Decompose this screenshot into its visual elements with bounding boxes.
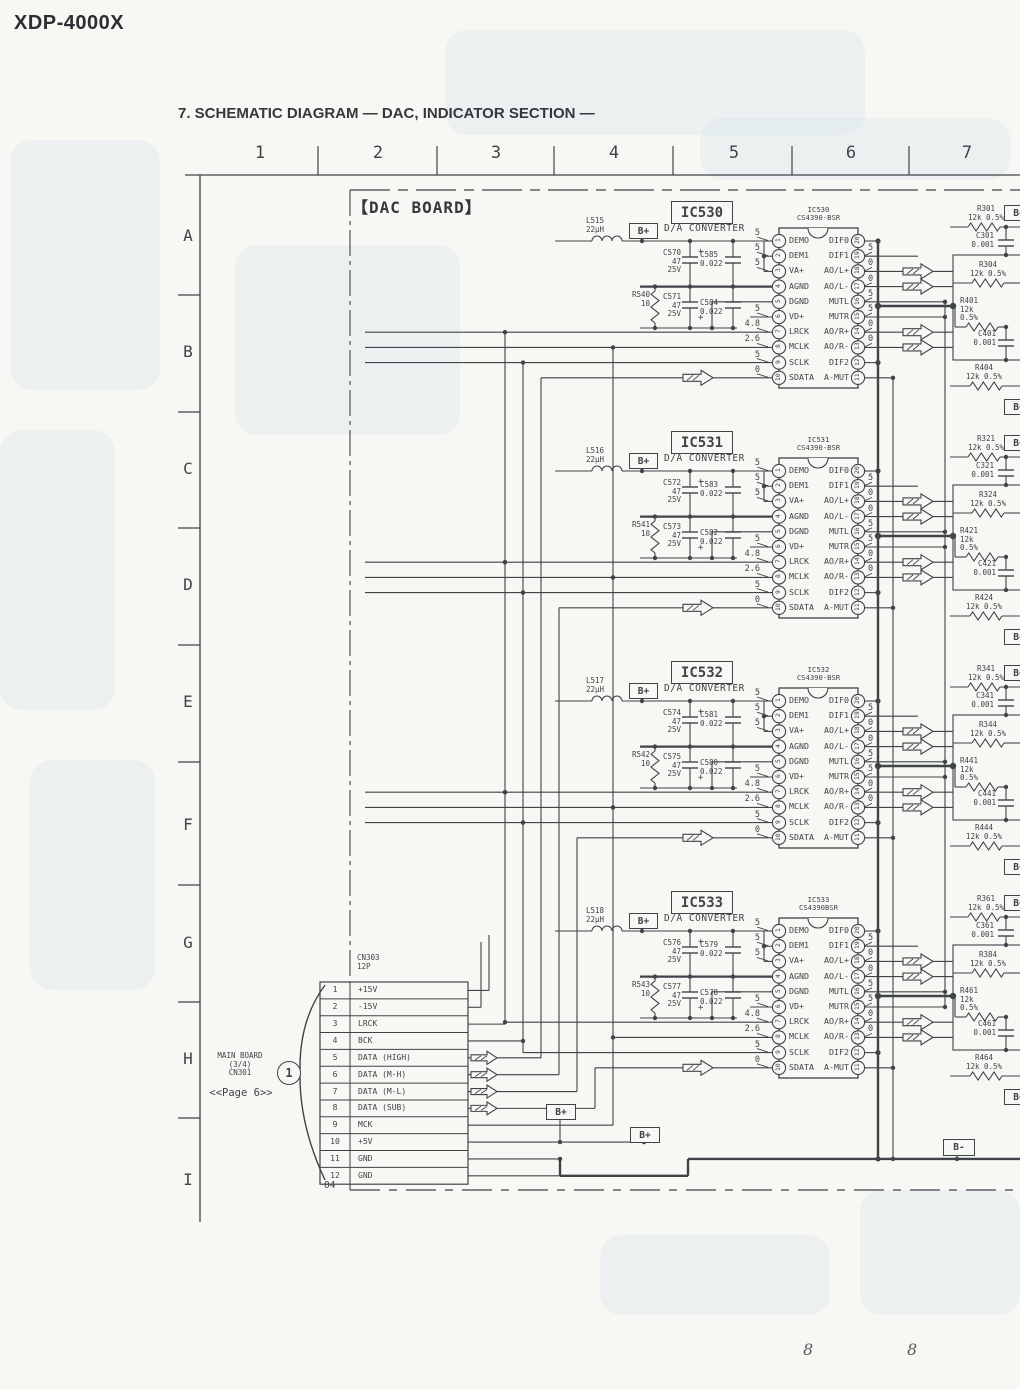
capacitor-label: 0.001 [952, 241, 994, 250]
pin-number: 5 [776, 295, 782, 307]
schematic-page: XDP-4000X 7. SCHEMATIC DIAGRAM — DAC, IN… [0, 0, 1020, 1389]
capacitor-label: C3410.001 [952, 692, 994, 709]
rail-label-bplus-label: B+ [638, 456, 649, 467]
resistor-label: R38412k 0.5% [960, 951, 1016, 968]
capacitor-label: 25V [645, 726, 681, 735]
grid-row-label: F [179, 816, 197, 834]
pin-voltage: 5 [730, 474, 760, 484]
pin-number: 10 [776, 1061, 782, 1073]
connector-pin-number: 4 [320, 1036, 350, 1045]
pin-name: DIF1 [786, 481, 849, 490]
pin-number: 8 [776, 801, 782, 813]
connector-pin-label: +15V [358, 985, 377, 994]
pin-voltage: 0 [868, 335, 873, 345]
capacitor-label: C3010.001 [952, 232, 994, 249]
pin-name: AO/L+ [786, 496, 849, 505]
pin-voltage: 0 [868, 795, 873, 805]
connector-pin-label: LRCK [358, 1019, 377, 1028]
grid-column-label: 4 [606, 144, 622, 163]
pin-name: DIF1 [786, 941, 849, 950]
pin-name: DIF0 [786, 466, 849, 475]
pin-voltage: 5 [730, 581, 760, 591]
main-board-link: CN301 [205, 1069, 275, 1078]
capacitor-label: 25V [645, 956, 681, 965]
pin-name: MUTL [786, 297, 849, 306]
pin-voltage: 0 [730, 826, 760, 836]
pin-voltage: 5 [730, 919, 760, 929]
capacitor-label: 0.022 [700, 768, 723, 777]
resistor-label: R40112k0.5% [960, 297, 978, 323]
pin-voltage: 0 [868, 719, 873, 729]
grid-row-label: C [179, 460, 197, 478]
pin-number: 11 [855, 831, 861, 843]
footer-page-number: 8 [803, 1340, 813, 1359]
connector-pin-number: 7 [320, 1087, 350, 1096]
ic-title: IC531 [671, 431, 733, 454]
pin-number: 13 [855, 571, 861, 583]
pin-number: 16 [855, 755, 861, 767]
pin-voltage: 5 [730, 535, 760, 545]
rail-label-clipped: B+ [1004, 859, 1020, 875]
pin-number: 17 [855, 280, 861, 292]
resistor-symbol [970, 382, 1002, 390]
pin-voltage: 0 [868, 1025, 873, 1035]
pin-name: DIF2 [786, 588, 849, 597]
pin-number: 12 [855, 586, 861, 598]
connector-pin-label: -15V [358, 1002, 377, 1011]
rail-label-bplus: B+ [629, 453, 658, 469]
rail-label-clipped: B+ [1004, 629, 1020, 645]
page-reference: <<Page 6>> [203, 1088, 279, 1100]
pin-voltage: 0 [868, 1025, 873, 1035]
rail-label-bplus: B+ [629, 223, 658, 239]
junction-dot [943, 530, 947, 534]
junction-dot [503, 330, 507, 334]
pin-name: DIF1 [786, 481, 849, 490]
pin-number: 4 [776, 510, 782, 522]
capacitor-label: 0.001 [952, 931, 994, 940]
pin-name: MUTR [786, 772, 849, 781]
signal-arrow-icon [903, 954, 933, 969]
grid-row-label: A [179, 227, 197, 245]
pin-voltage: 2.6 [730, 795, 760, 805]
pin-voltage: 5 [868, 520, 873, 530]
resistor-symbol [972, 509, 1004, 517]
pin-voltage: 0 [868, 505, 873, 515]
connector-pin-number: 9 [320, 1120, 350, 1129]
pin-voltage: 5 [868, 305, 873, 315]
inductor-label: L51622μH [586, 447, 604, 464]
pin-number: 20 [855, 234, 861, 246]
rail-label-clipped-label: B+ [1013, 862, 1020, 873]
pin-voltage: 5 [730, 719, 760, 729]
junction-dot [891, 606, 895, 610]
inductor-label: 22μH [586, 456, 604, 465]
pin-number: 15 [855, 310, 861, 322]
pin-number: 4 [776, 970, 782, 982]
inductor-label: L51722μH [586, 677, 604, 694]
pin-number: 3 [776, 495, 782, 507]
pin-voltage: 0 [868, 949, 873, 959]
grid-row-label: D [179, 576, 197, 594]
pin-voltage: 0 [868, 780, 873, 790]
junction-dot [1004, 1048, 1008, 1052]
junction-dot [503, 560, 507, 564]
pin-voltage: 5 [868, 244, 873, 254]
grid-column-label: 3 [488, 144, 504, 163]
pin-voltage: 5 [730, 949, 760, 959]
pin-name: MUTR [786, 542, 849, 551]
pin-name: A-MUT [786, 373, 849, 382]
capacitor-label: 0.022 [700, 308, 723, 317]
pin-name: DIF2 [786, 358, 849, 367]
pin-number: 10 [776, 371, 782, 383]
grid-column-label: 5 [726, 144, 742, 163]
junction-dot [611, 805, 615, 809]
pin-voltage: 0 [868, 780, 873, 790]
pin-number: 6 [776, 540, 782, 552]
ic-title-label: IC533 [681, 895, 723, 911]
pin-name: DIF2 [786, 588, 849, 597]
pin-name: MUTR [786, 312, 849, 321]
pin-voltage: 5 [730, 259, 760, 269]
grid-row-label: H [179, 1050, 197, 1068]
connector-pin-label: GND [358, 1154, 372, 1163]
pin-voltage: 4.8 [730, 320, 760, 330]
capacitor-label: C5734725V [645, 523, 681, 549]
signal-arrow-icon [903, 340, 933, 355]
junction-dot [762, 944, 766, 948]
capacitor-label: C5820.022 [700, 529, 723, 546]
rail-label-bplus-label: B+ [638, 226, 649, 237]
pin-name: MUTL [786, 527, 849, 536]
pin-number: 9 [776, 586, 782, 598]
rail-label-clipped-label: B+ [1013, 632, 1020, 643]
pin-voltage: 5 [868, 474, 873, 484]
pin-voltage: 5 [730, 259, 760, 269]
pin-name: DIF2 [786, 818, 849, 827]
rail-label-clipped-label: B+ [1013, 402, 1020, 413]
inductor-label: 22μH [586, 686, 604, 695]
pin-name: AO/L- [786, 282, 849, 291]
junction-dot [943, 760, 947, 764]
pin-voltage: 0 [868, 1010, 873, 1020]
junction-dot [875, 360, 880, 365]
capacitor-label: 0.022 [700, 260, 723, 269]
connector-pin-number: 10 [320, 1137, 350, 1146]
grid-column-label: 6 [843, 144, 859, 163]
capacitor-label: C5800.022 [700, 759, 723, 776]
pin-voltage: 5 [730, 581, 760, 591]
capacitor-label: 0.022 [700, 720, 723, 729]
capacitor-label: C4410.001 [954, 790, 996, 807]
ic-part-label: CS4390BSR [779, 904, 858, 912]
connector-pin-number: 2 [320, 1002, 350, 1011]
junction-dot [875, 993, 881, 999]
pin-voltage: 0 [868, 259, 873, 269]
pin-voltage: 0 [868, 550, 873, 560]
capacitor-label: 0.022 [700, 538, 723, 547]
connector-pin-number: 9 [320, 1120, 350, 1129]
connector-pin-label: LRCK [358, 1019, 377, 1028]
pin-number: 7 [776, 325, 782, 337]
pin-number: 11 [855, 601, 861, 613]
capacitor-label: C5830.022 [700, 481, 723, 498]
capacitor-label: 0.001 [952, 701, 994, 710]
pin-voltage: 0 [868, 565, 873, 575]
pin-voltage: 5 [730, 704, 760, 714]
pin-voltage: 5 [730, 1041, 760, 1051]
signal-arrow-icon [903, 279, 933, 294]
pin-number: 20 [855, 694, 861, 706]
pin-voltage: 0 [868, 795, 873, 805]
junction-dot [503, 790, 507, 794]
capacitor-label: C5774725V [645, 983, 681, 1009]
capacitor-label: C5764725V [645, 939, 681, 965]
grid-column-label: 5 [726, 144, 742, 163]
connector-pin-number: 7 [320, 1087, 350, 1096]
pin-number: 14 [855, 325, 861, 337]
resistor-label: 12k 0.5% [956, 603, 1012, 612]
ic-title: IC532 [671, 661, 733, 684]
connector-pin-label: DATA (HIGH) [358, 1053, 411, 1062]
junction-dot [762, 484, 766, 488]
junction-dot [875, 590, 880, 595]
pin-voltage: 5 [730, 305, 760, 315]
pin-number: 4 [776, 740, 782, 752]
connector-link-circle: 1 [277, 1061, 301, 1085]
pin-number: 18 [855, 495, 861, 507]
pin-voltage: 0 [868, 489, 873, 499]
pin-number: 1 [776, 464, 782, 476]
resistor-label: R30412k 0.5% [960, 261, 1016, 278]
pin-voltage: 5 [868, 290, 873, 300]
resistor-label: R42112k0.5% [960, 527, 978, 553]
pin-name: DIF0 [786, 696, 849, 705]
connector-pin-label: MCK [358, 1120, 372, 1129]
grid-row-label: I [179, 1171, 197, 1189]
resistor-symbol [972, 279, 1004, 287]
pin-name: AO/R+ [786, 787, 849, 796]
pin-name: DIF1 [786, 711, 849, 720]
pin-voltage: 4.8 [730, 780, 760, 790]
connector-pin-number: 12 [320, 1171, 350, 1180]
grid-row-label: G [179, 934, 197, 952]
pin-name: DIF0 [786, 466, 849, 475]
pin-number: 18 [855, 955, 861, 967]
pin-name: AO/R- [786, 572, 849, 581]
pin-voltage: 2.6 [730, 335, 760, 345]
connector-pin-number: 1 [320, 985, 350, 994]
pin-name: MUTL [786, 297, 849, 306]
signal-arrow-icon [903, 555, 933, 570]
pin-name: DIF0 [786, 926, 849, 935]
pin-voltage: 0 [868, 735, 873, 745]
pin-number: 11 [855, 371, 861, 383]
pin-voltage: 4.8 [730, 1010, 760, 1020]
ic-part-label: IC531CS4390-BSR [779, 436, 858, 452]
capacitor-label: 25V [645, 266, 681, 275]
pin-voltage: 5 [730, 811, 760, 821]
rail-label-bminus-label: B- [953, 1142, 964, 1153]
pin-voltage: 0 [868, 949, 873, 959]
pin-number: 9 [776, 1046, 782, 1058]
pin-name: DIF2 [786, 1048, 849, 1057]
capacitor-label: 0.001 [954, 339, 996, 348]
pin-number: 13 [855, 1031, 861, 1043]
wire-layer [0, 0, 1020, 1389]
junction-dot [875, 1050, 880, 1055]
page-reference: <<Page 6>> [203, 1088, 279, 1100]
pin-voltage: 0 [730, 596, 760, 606]
resistor-symbol [968, 223, 1000, 231]
pin-voltage: 5 [868, 750, 873, 760]
pin-voltage: 5 [730, 351, 760, 361]
pin-name: MUTR [786, 312, 849, 321]
signal-arrow-icon [903, 1030, 933, 1045]
resistor-label: R32412k 0.5% [960, 491, 1016, 508]
connector-pin-number: 8 [320, 1103, 350, 1112]
signal-arrow-icon [903, 969, 933, 984]
connector-pin-label: DATA (SUB) [358, 1103, 406, 1112]
capacitor-label: 0.022 [700, 490, 723, 499]
pin-voltage: 0 [868, 259, 873, 269]
rail-label-bplus: B+ [629, 683, 658, 699]
pin-number: 7 [776, 1015, 782, 1027]
junction-dot [521, 590, 525, 594]
rail-label-clipped: B+ [1004, 435, 1020, 451]
rail-label-clipped: B+ [1004, 665, 1020, 681]
pin-number: 2 [776, 479, 782, 491]
pin-name: AO/R+ [786, 787, 849, 796]
signal-arrow-icon [683, 600, 713, 615]
grid-column-label: 2 [370, 144, 386, 163]
pin-voltage: 0 [730, 366, 760, 376]
pin-name: AO/L- [786, 972, 849, 981]
capacitor-label: 0.001 [954, 799, 996, 808]
pin-voltage: 5 [868, 535, 873, 545]
capacitor-label: 25V [645, 310, 681, 319]
pin-name: AO/R+ [786, 557, 849, 566]
pin-voltage: 5 [868, 290, 873, 300]
capacitor-label: C5780.022 [700, 989, 723, 1006]
junction-dot [762, 714, 766, 718]
capacitor-label: 25V [645, 770, 681, 779]
junction-dot [875, 533, 881, 539]
capacitor-label: C5724725V [645, 479, 681, 505]
junction-dot [558, 1157, 562, 1161]
pin-number: 10 [776, 831, 782, 843]
connector-pin-label: GND [358, 1171, 372, 1180]
connector-pin-number: 5 [320, 1053, 350, 1062]
capacitor-label: 0.001 [954, 569, 996, 578]
resistor-symbol [968, 913, 1000, 921]
capacitor-label: C3210.001 [952, 462, 994, 479]
ic-part-label: IC532CS4390-BSR [779, 666, 858, 682]
ic-title-label: IC530 [681, 205, 723, 221]
pin-number: 2 [776, 249, 782, 261]
pin-number: 1 [776, 924, 782, 936]
pin-voltage: 2.6 [730, 1025, 760, 1035]
pin-name: DIF2 [786, 358, 849, 367]
connector-pin-label: BCK [358, 1036, 372, 1045]
junction-dot [891, 836, 895, 840]
pin-voltage: 5 [868, 995, 873, 1005]
inductor-symbol [592, 466, 622, 471]
capacitor-label: C4010.001 [954, 330, 996, 347]
pin-name: MUTR [786, 1002, 849, 1011]
pin-voltage: 0 [868, 335, 873, 345]
signal-arrow-icon [903, 800, 933, 815]
grid-column-label: 4 [606, 144, 622, 163]
connector-pin-number: 11 [320, 1154, 350, 1163]
pin-name: MUTR [786, 772, 849, 781]
pin-number: 5 [776, 525, 782, 537]
pin-voltage: 5 [868, 995, 873, 1005]
pin-voltage: 5 [868, 535, 873, 545]
pin-name: AO/L- [786, 742, 849, 751]
rail-label-clipped: B+ [1004, 205, 1020, 221]
pin-name: AO/R+ [786, 327, 849, 336]
main-board-link: MAIN BOARD(3/4)CN301 [205, 1052, 275, 1078]
pin-number: 8 [776, 571, 782, 583]
pin-name: AO/L+ [786, 726, 849, 735]
pin-voltage: 5 [868, 765, 873, 775]
resistor-label: 0.5% [960, 544, 978, 553]
pin-voltage: 0 [868, 719, 873, 729]
grid-row-label: F [179, 816, 197, 834]
rail-label-clipped-label: B+ [1013, 1092, 1020, 1103]
pin-voltage: 0 [730, 1056, 760, 1066]
ic-part-label: CS4390-BSR [779, 444, 858, 452]
pin-voltage: 2.6 [730, 565, 760, 575]
pin-voltage: 5 [730, 459, 760, 469]
pin-name: DIF2 [786, 1048, 849, 1057]
inductor-label: 22μH [586, 226, 604, 235]
pin-number: 17 [855, 740, 861, 752]
pin-voltage: 5 [730, 459, 760, 469]
pin-name: AO/L- [786, 282, 849, 291]
connector-pin-number: 6 [320, 1070, 350, 1079]
pin-name: AO/R+ [786, 1017, 849, 1026]
pin-voltage: 2.6 [730, 565, 760, 575]
pin-name: DIF0 [786, 696, 849, 705]
rail-label-clipped-label: B+ [1013, 438, 1020, 449]
connector-pin-label: +5V [358, 1137, 372, 1146]
pin-number: 6 [776, 770, 782, 782]
connector-pin-number: 3 [320, 1019, 350, 1028]
pin-name: AO/L+ [786, 726, 849, 735]
connector-pin-label: DATA (M-H) [358, 1070, 406, 1079]
pin-number: 17 [855, 970, 861, 982]
junction-dot [762, 254, 766, 258]
pin-name: AO/L- [786, 512, 849, 521]
resistor-label: 12k 0.5% [956, 1063, 1012, 1072]
pin-voltage: 5 [868, 704, 873, 714]
pin-number: 12 [855, 1046, 861, 1058]
pin-voltage: 5 [730, 704, 760, 714]
connector-pin-number: 5 [320, 1053, 350, 1062]
grid-column-label: 1 [252, 144, 268, 163]
pin-name: AO/L+ [786, 956, 849, 965]
resistor-label: R46412k 0.5% [956, 1054, 1012, 1071]
pin-name: A-MUT [786, 603, 849, 612]
pin-voltage: 5 [730, 995, 760, 1005]
connector-pin-label: DATA (SUB) [358, 1103, 406, 1112]
signal-arrow-icon [903, 1015, 933, 1030]
grid-column-label: 2 [370, 144, 386, 163]
grid-row-label: C [179, 460, 197, 478]
